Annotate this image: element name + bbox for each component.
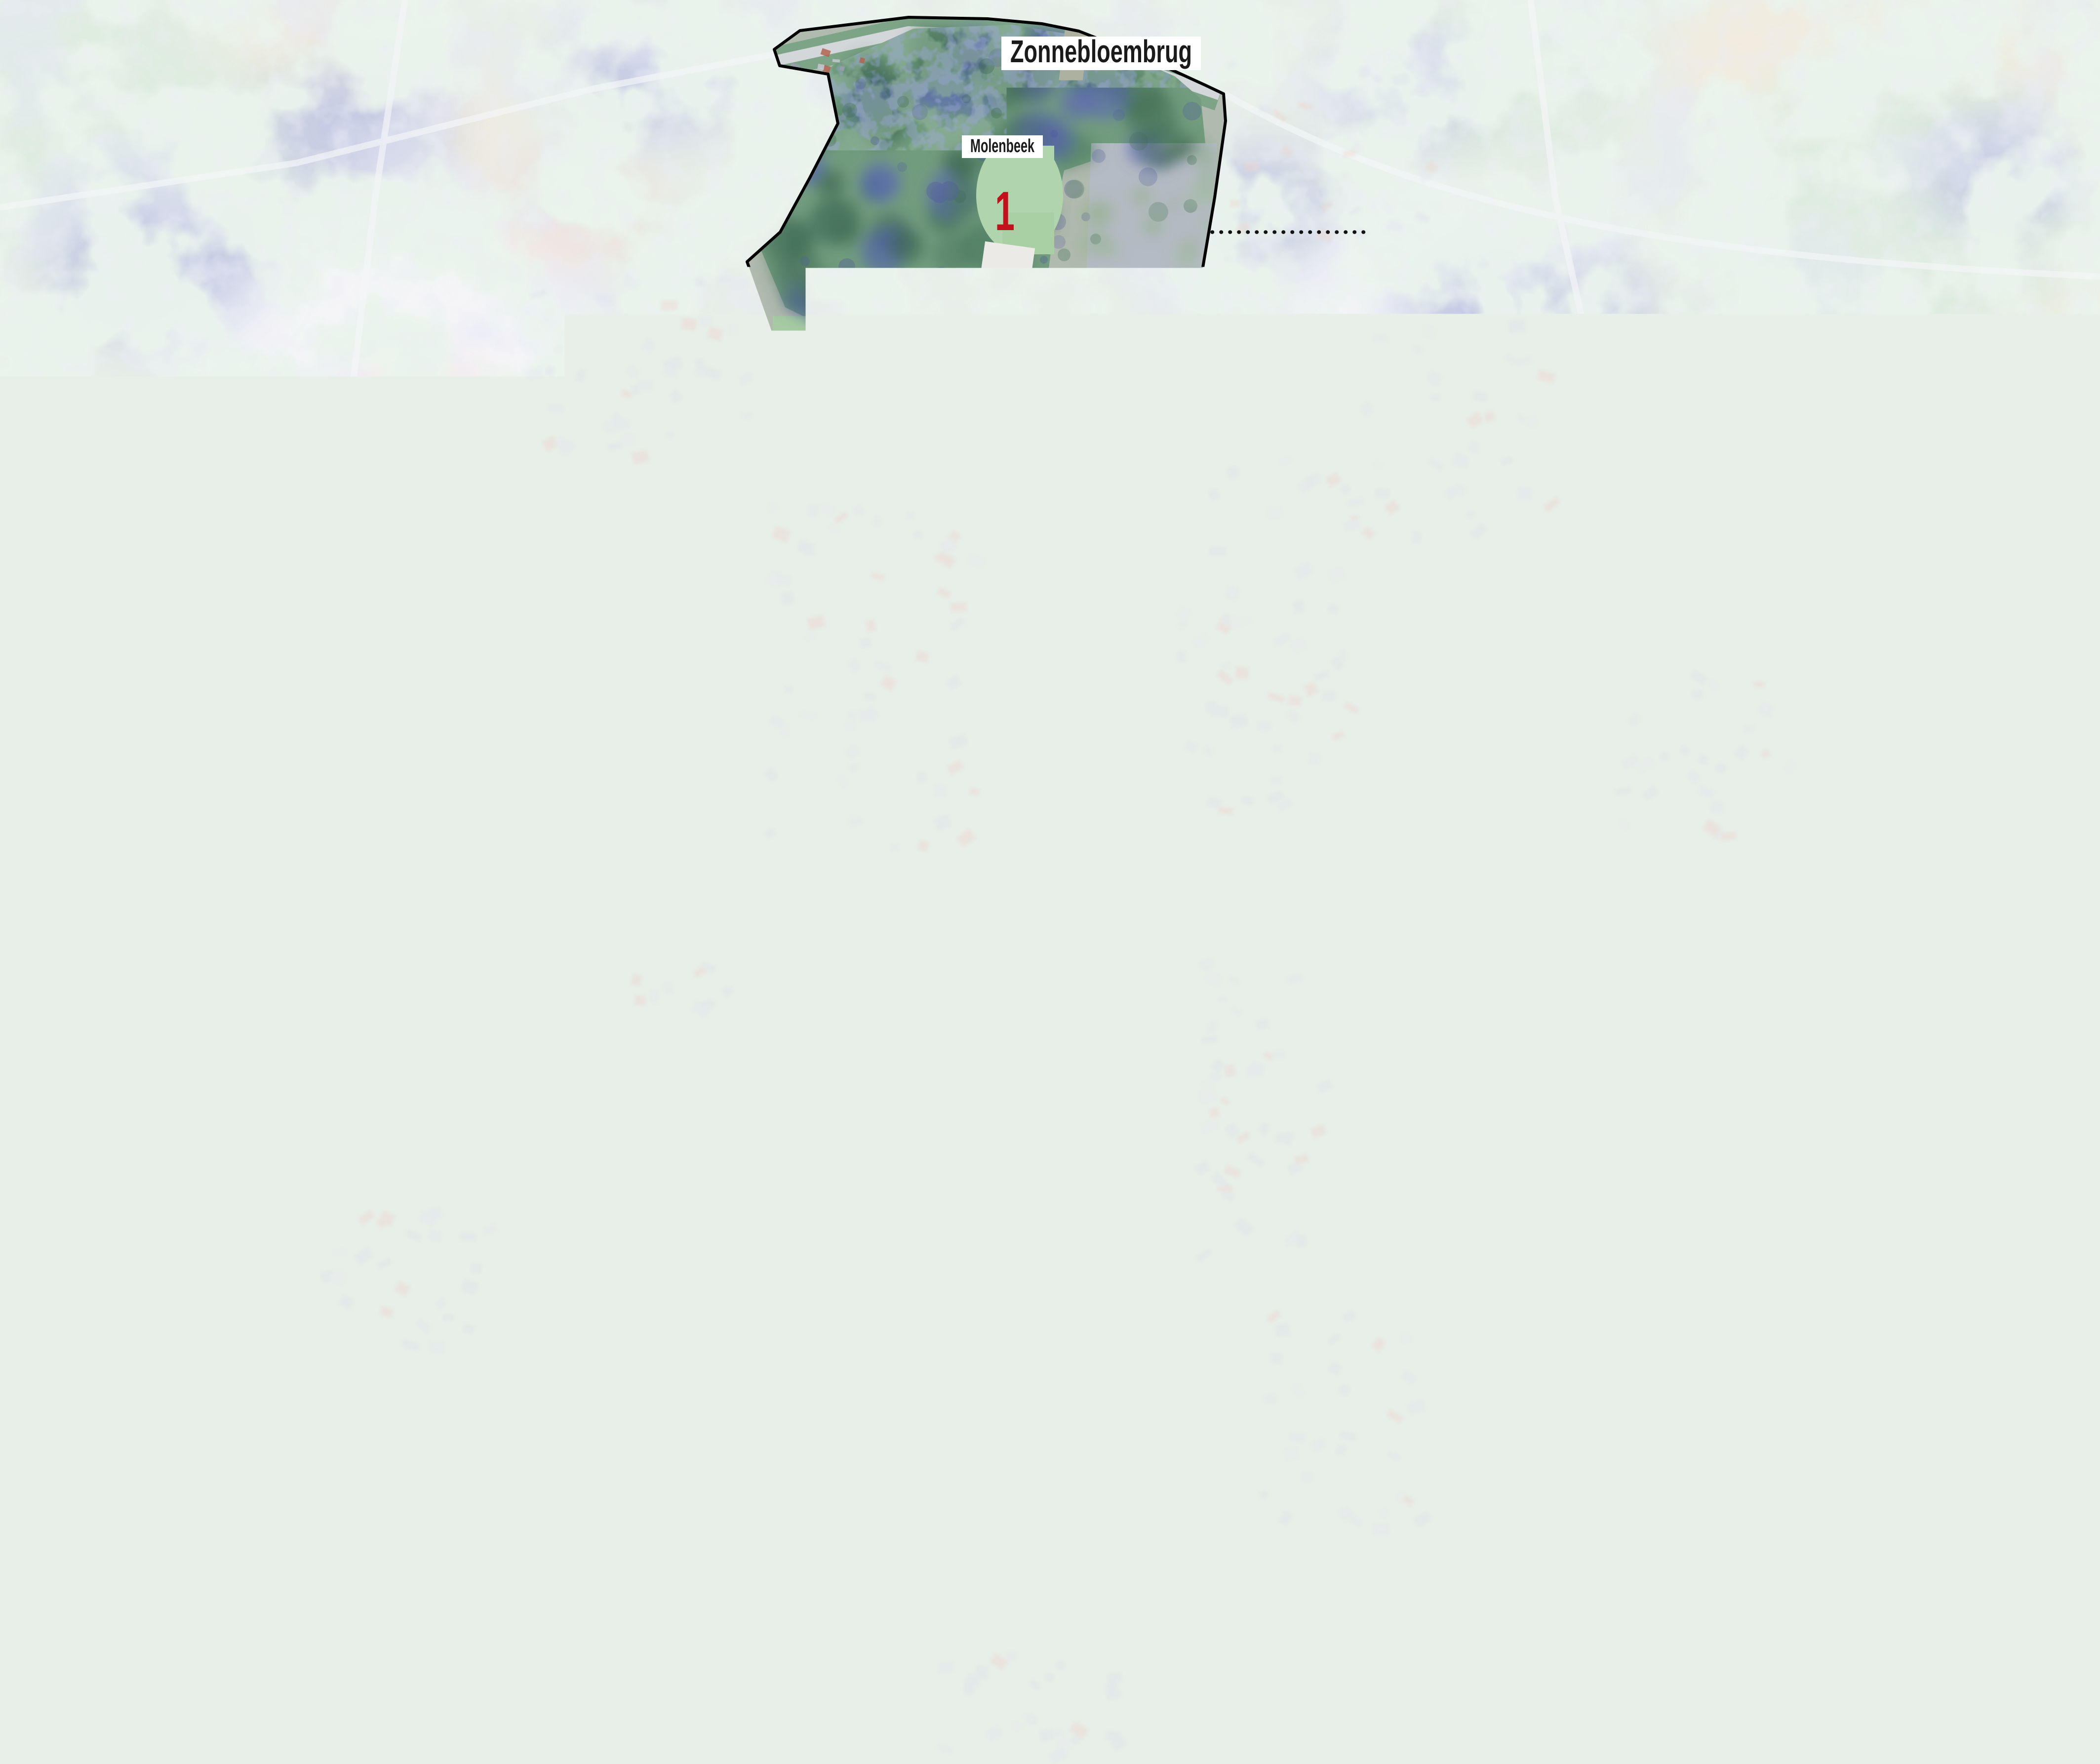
svg-text:Zone 3: Zone 3 bbox=[1967, 1092, 2052, 1129]
svg-text:Sluis: Sluis bbox=[1123, 824, 1152, 845]
svg-text:Zone 2: Zone 2 bbox=[1967, 666, 2052, 704]
svg-text:1: 1 bbox=[995, 180, 1015, 242]
svg-text:2: 2 bbox=[1053, 562, 1080, 624]
svg-text:Centrumdoortocht: Centrumdoortocht bbox=[1801, 736, 2052, 773]
svg-text:AC site: AC site bbox=[1079, 361, 1157, 397]
svg-text:Zonnebloembrug: Zonnebloembrug bbox=[1010, 34, 1192, 69]
svg-text:3: 3 bbox=[950, 1135, 976, 1197]
svg-text:Hunnegem: Hunnegem bbox=[727, 1098, 798, 1119]
svg-text:Spoorwegbrug: Spoorwegbrug bbox=[436, 1344, 593, 1380]
svg-text:Unal site: Unal site bbox=[833, 1388, 894, 1409]
svg-text:Station: Station bbox=[599, 674, 667, 709]
svg-text:Den Bleek: Den Bleek bbox=[1055, 1063, 1114, 1084]
svg-text:Zuidelijke Dender: Zuidelijke Dender bbox=[1807, 1166, 2052, 1204]
svg-text:Dender: Dender bbox=[860, 1235, 933, 1270]
svg-text:De Muur: De Muur bbox=[1553, 520, 1633, 555]
svg-text:Molenbeek: Molenbeek bbox=[970, 136, 1035, 157]
svg-text:Zone 1: Zone 1 bbox=[1967, 213, 2052, 250]
svg-text:Noordelijke Dender: Noordelijke Dender bbox=[1806, 261, 2052, 298]
svg-text:Grote Markt: Grote Markt bbox=[1233, 584, 1359, 619]
